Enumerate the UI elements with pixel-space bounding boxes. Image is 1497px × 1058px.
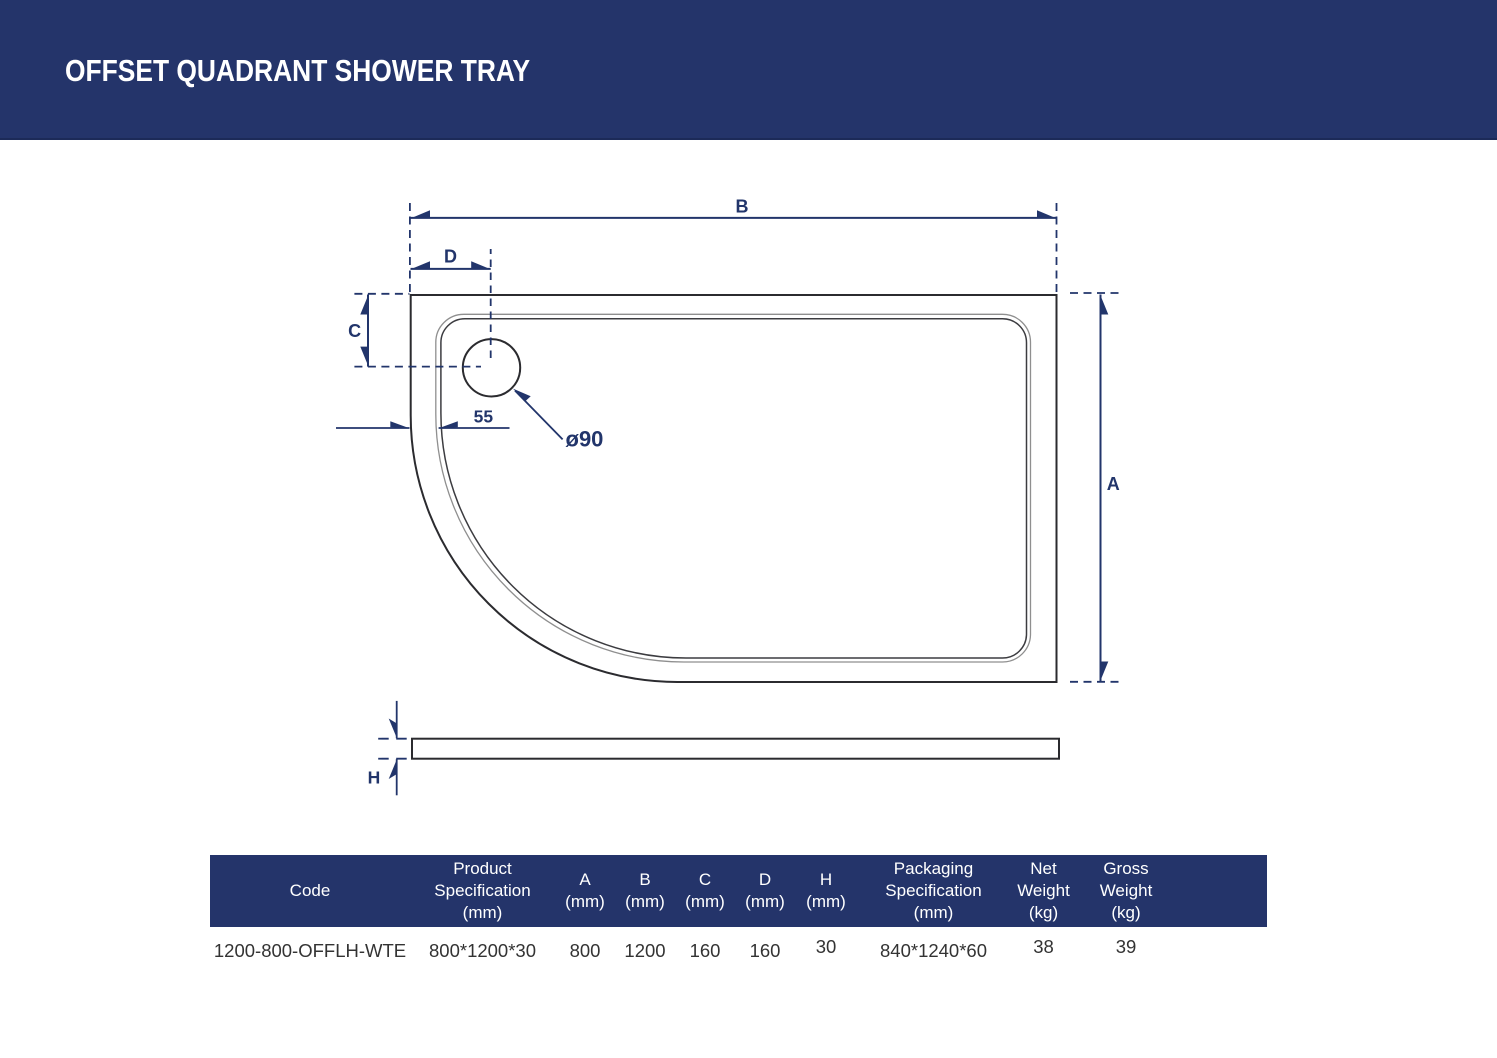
svg-text:H: H: [368, 768, 381, 788]
svg-text:A: A: [1107, 474, 1120, 494]
svg-text:D: D: [444, 246, 457, 266]
svg-text:C: C: [348, 321, 361, 341]
svg-text:ø90: ø90: [566, 427, 604, 452]
svg-text:B: B: [736, 197, 749, 217]
svg-text:55: 55: [474, 407, 494, 427]
